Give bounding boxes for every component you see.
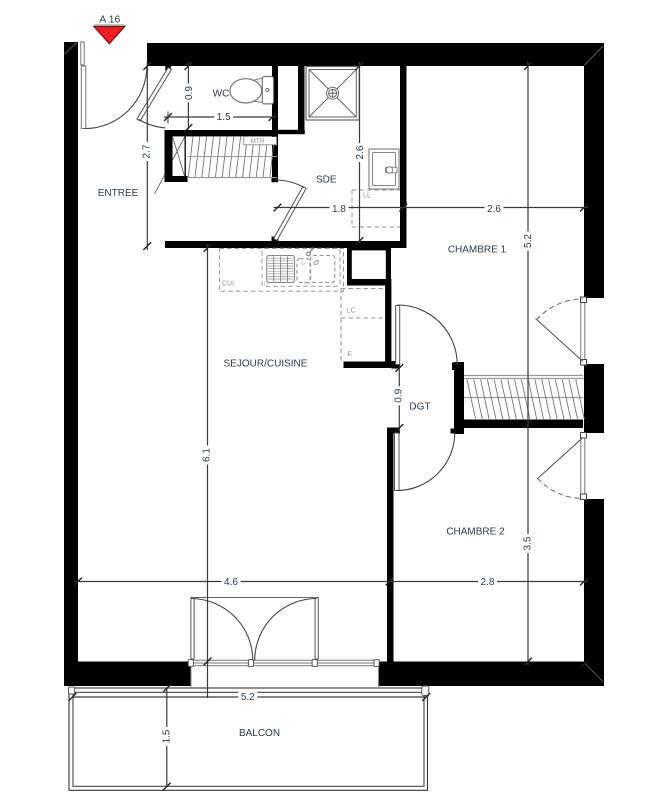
svg-text:P: P <box>302 261 305 267</box>
svg-text:DGT: DGT <box>409 401 430 412</box>
svg-text:SDE: SDE <box>316 174 337 185</box>
svg-text:HN: HN <box>304 281 311 286</box>
svg-text:LL: LL <box>363 192 371 199</box>
svg-text:SEJOUR/CUISINE: SEJOUR/CUISINE <box>224 359 308 370</box>
svg-text:2.7: 2.7 <box>142 144 153 158</box>
svg-text:LC: LC <box>346 305 356 314</box>
svg-text:MTR: MTR <box>250 138 264 145</box>
svg-text:LV: LV <box>264 281 269 286</box>
svg-text:2.8: 2.8 <box>481 577 495 588</box>
svg-text:ENTREE: ENTREE <box>98 188 139 199</box>
svg-text:0.9: 0.9 <box>184 86 195 100</box>
svg-text:WC: WC <box>213 89 230 100</box>
svg-text:F: F <box>347 349 352 358</box>
svg-text:6.1: 6.1 <box>202 448 213 462</box>
svg-text:2.6: 2.6 <box>487 204 501 215</box>
svg-text:5.2: 5.2 <box>241 692 255 703</box>
svg-text:4.6: 4.6 <box>224 577 238 588</box>
svg-text:0.9: 0.9 <box>394 388 405 402</box>
svg-text:5.2: 5.2 <box>523 234 534 248</box>
svg-text:CHAMBRE 1: CHAMBRE 1 <box>448 244 507 255</box>
svg-text:2.6: 2.6 <box>355 145 366 159</box>
svg-text:BALCON: BALCON <box>239 728 280 739</box>
svg-text:3.5: 3.5 <box>523 536 534 550</box>
svg-text:A 16: A 16 <box>99 14 120 26</box>
svg-text:CHAMBRE 2: CHAMBRE 2 <box>446 527 505 538</box>
svg-text:1.5: 1.5 <box>162 729 173 743</box>
svg-text:1.5: 1.5 <box>217 112 231 123</box>
svg-text:1.8: 1.8 <box>332 204 346 215</box>
svg-text:CUI: CUI <box>222 281 234 288</box>
